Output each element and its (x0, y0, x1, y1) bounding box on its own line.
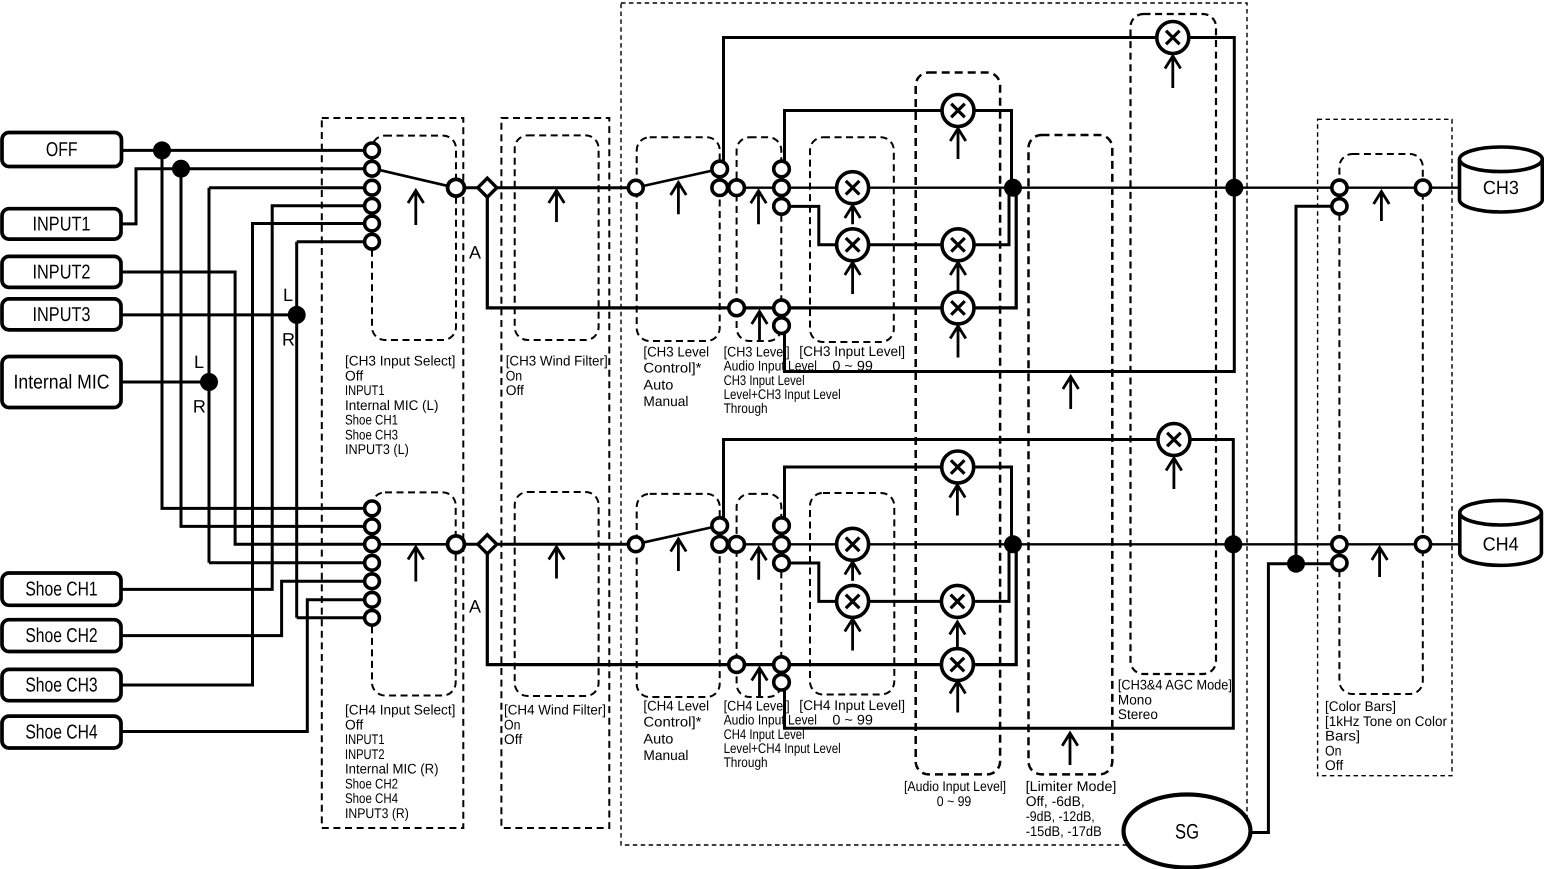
svg-text:On: On (504, 716, 521, 732)
svg-text:Off: Off (506, 382, 524, 398)
svg-text:Through: Through (724, 400, 768, 416)
svg-text:Manual: Manual (643, 747, 688, 763)
svg-text:Off: Off (504, 731, 522, 747)
svg-text:SG: SG (1175, 821, 1199, 844)
svg-text:[CH3 Level: [CH3 Level (643, 343, 709, 359)
svg-text:Stereo: Stereo (1118, 706, 1158, 722)
svg-text:Bars]: Bars] (1325, 728, 1360, 744)
svg-text:[Color Bars]: [Color Bars] (1325, 698, 1396, 714)
svg-text:R: R (193, 397, 206, 417)
svg-text:A: A (469, 242, 481, 262)
svg-text:[CH3 Input Select]: [CH3 Input Select] (345, 353, 455, 369)
svg-text:Off, -6dB,: Off, -6dB, (1026, 793, 1085, 809)
svg-text:INPUT3 (R): INPUT3 (R) (345, 805, 409, 821)
svg-text:Shoe CH4: Shoe CH4 (345, 790, 398, 806)
svg-text:INPUT3 (L): INPUT3 (L) (345, 441, 409, 457)
svg-text:[CH3&4 AGC Mode]: [CH3&4 AGC Mode] (1118, 677, 1232, 693)
svg-text:On: On (506, 367, 523, 383)
svg-text:INPUT2: INPUT2 (345, 746, 385, 762)
svg-text:0 ~ 99: 0 ~ 99 (832, 357, 873, 373)
svg-text:Manual: Manual (643, 393, 688, 409)
svg-text:INPUT1: INPUT1 (345, 731, 385, 747)
svg-text:INPUT1: INPUT1 (345, 382, 385, 398)
svg-text:Control]*: Control]* (643, 713, 702, 729)
svg-text:[Audio Input Level]: [Audio Input Level] (904, 778, 1006, 794)
svg-text:Off: Off (345, 367, 363, 383)
svg-text:0 ~ 99: 0 ~ 99 (937, 793, 972, 809)
svg-text:R: R (282, 330, 295, 350)
svg-text:Through: Through (724, 754, 768, 770)
svg-text:INPUT3: INPUT3 (33, 304, 91, 326)
svg-text:CH3: CH3 (1483, 178, 1519, 199)
svg-text:[Limiter Mode]: [Limiter Mode] (1026, 778, 1117, 794)
svg-text:Auto: Auto (643, 730, 673, 746)
svg-text:CH4: CH4 (1483, 535, 1519, 556)
svg-text:Auto: Auto (643, 376, 673, 392)
svg-text:INPUT1: INPUT1 (33, 213, 91, 235)
svg-text:Internal MIC: Internal MIC (14, 371, 110, 393)
svg-text:A: A (469, 597, 481, 617)
svg-text:Shoe CH2: Shoe CH2 (345, 775, 398, 791)
svg-text:[CH3 Wind Filter]: [CH3 Wind Filter] (506, 353, 608, 369)
svg-text:[CH4 Level: [CH4 Level (643, 698, 709, 714)
svg-text:OFF: OFF (46, 139, 78, 161)
svg-text:Shoe CH1: Shoe CH1 (25, 579, 97, 601)
svg-text:[1kHz Tone on Color: [1kHz Tone on Color (1325, 713, 1447, 729)
svg-text:L: L (194, 352, 204, 372)
svg-text:Shoe CH3: Shoe CH3 (25, 674, 97, 696)
svg-text:Internal MIC (L): Internal MIC (L) (345, 397, 439, 413)
svg-text:-15dB, -17dB: -15dB, -17dB (1026, 823, 1102, 839)
svg-text:[CH4 Wind Filter]: [CH4 Wind Filter] (504, 702, 606, 718)
svg-text:0 ~ 99: 0 ~ 99 (832, 711, 873, 727)
svg-text:L: L (283, 285, 293, 305)
svg-text:Shoe CH2: Shoe CH2 (25, 625, 97, 647)
svg-text:Mono: Mono (1118, 691, 1152, 707)
svg-text:Shoe CH3: Shoe CH3 (345, 426, 398, 442)
svg-text:[CH4 Input Select]: [CH4 Input Select] (345, 702, 455, 718)
svg-text:Off: Off (345, 716, 363, 732)
svg-text:Shoe CH1: Shoe CH1 (345, 412, 398, 428)
svg-text:-9dB, -12dB,: -9dB, -12dB, (1026, 808, 1095, 824)
svg-text:Shoe CH4: Shoe CH4 (25, 721, 97, 743)
svg-text:Internal MIC (R): Internal MIC (R) (345, 761, 439, 777)
svg-text:Off: Off (1325, 757, 1343, 773)
svg-text:Control]*: Control]* (643, 359, 702, 375)
svg-text:INPUT2: INPUT2 (33, 261, 91, 283)
svg-text:On: On (1325, 742, 1342, 758)
